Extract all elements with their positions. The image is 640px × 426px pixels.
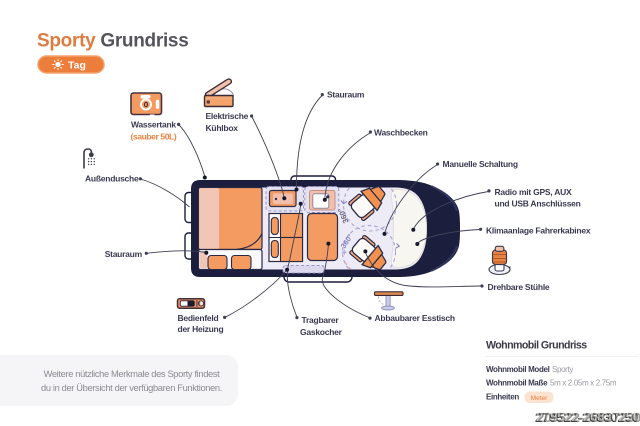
- svg-text:Tag: Tag: [68, 60, 86, 72]
- svg-text:Meter: Meter: [531, 395, 548, 402]
- svg-text:Wassertank: Wassertank: [131, 120, 176, 130]
- svg-text:5m x 2.05m x 2.75m: 5m x 2.05m x 2.75m: [550, 379, 617, 388]
- svg-text:du in der Übersicht der verfüg: du in der Übersicht der verfügbaren Funk…: [41, 383, 222, 393]
- svg-text:Weitere nützliche Merkmale des: Weitere nützliche Merkmale des Sporty fi…: [44, 369, 221, 379]
- svg-text:209522-26837230: 209522-26837230: [537, 410, 640, 425]
- svg-text:Sporty: Sporty: [552, 365, 573, 374]
- svg-text:Bedienfeld: Bedienfeld: [178, 313, 219, 323]
- svg-text:Manuelle Schaltung: Manuelle Schaltung: [443, 159, 518, 169]
- svg-text:Gaskocher: Gaskocher: [300, 327, 343, 337]
- svg-text:Stauraum: Stauraum: [105, 249, 143, 259]
- svg-text:Stauraum: Stauraum: [327, 90, 365, 100]
- svg-text:Außendusche: Außendusche: [85, 174, 139, 184]
- svg-text:und USB Anschlüssen: und USB Anschlüssen: [495, 199, 581, 209]
- svg-text:(sauber 50L): (sauber 50L): [131, 132, 177, 142]
- svg-text:Waschbecken: Waschbecken: [374, 128, 428, 138]
- svg-text:Sporty Grundriss: Sporty Grundriss: [37, 31, 188, 52]
- svg-text:Radio mit GPS, AUX: Radio mit GPS, AUX: [495, 187, 572, 197]
- svg-text:Einheiten: Einheiten: [486, 393, 519, 402]
- svg-text:Wohnmobil Model: Wohnmobil Model: [486, 365, 550, 374]
- svg-text:Drehbare Stühle: Drehbare Stühle: [488, 282, 550, 292]
- svg-text:Klimaanlage Fahrerkabinex: Klimaanlage Fahrerkabinex: [486, 226, 591, 236]
- svg-text:Abbaubarer Esstisch: Abbaubarer Esstisch: [375, 313, 455, 323]
- svg-text:Kühlbox: Kühlbox: [206, 123, 239, 133]
- svg-text:Tragbarer: Tragbarer: [302, 315, 340, 325]
- svg-text:Wohnmobil Maße: Wohnmobil Maße: [486, 379, 548, 388]
- svg-text:Wohnmobil Grundriss: Wohnmobil Grundriss: [486, 340, 587, 352]
- svg-text:Elektrische: Elektrische: [206, 111, 249, 121]
- svg-text:der Heizung: der Heizung: [178, 324, 224, 334]
